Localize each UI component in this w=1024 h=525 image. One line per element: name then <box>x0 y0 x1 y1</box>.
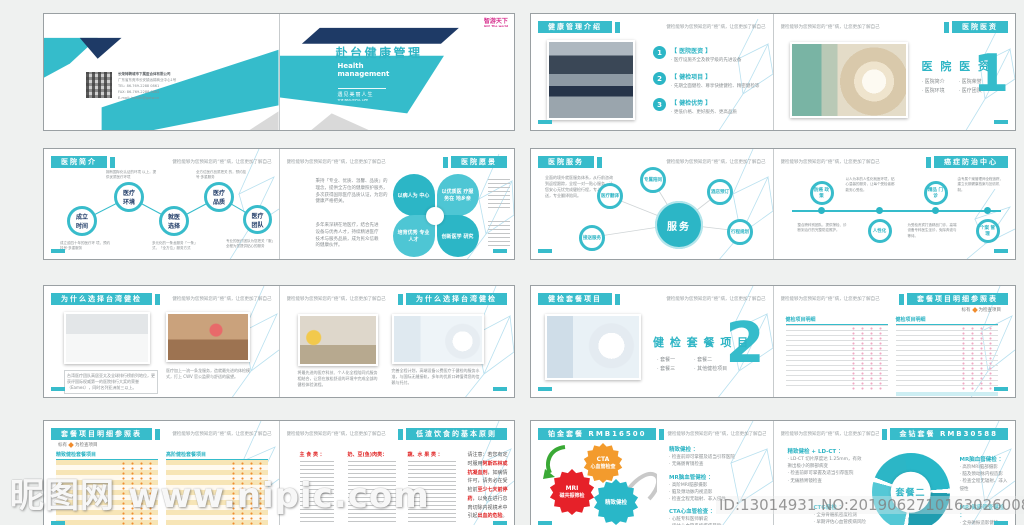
table-legend: 标有为检查项目 <box>962 307 1002 313</box>
running-header: 健检能够为您预知您的“癌”病，让您更加了解自己 <box>781 296 880 302</box>
running-header: 健检能够为您预知您的“癌”病，让您更加了解自己 <box>781 24 880 30</box>
page-header: 医院服务 健检能够为您预知您的“癌”病，让您更加了解自己 <box>531 156 773 168</box>
page-title: 医院医资 <box>952 21 1008 33</box>
stage-node: 个案 管理 <box>976 219 1000 243</box>
diamond-icon <box>972 307 978 313</box>
legend-text: 为检查项目 <box>75 442 98 448</box>
diet-col-header: 主 食 类 ： <box>300 451 325 458</box>
company-email: E-mail: health@gotw.cn <box>118 96 176 102</box>
company-info: 长荣特聘城市下属医合体有限公司 广东省东莞市长安镇远锦商业中心1号 TEL: 8… <box>118 72 176 102</box>
item-body: · 更低价格、更好服务、更高品质 <box>671 109 737 115</box>
timeline-caption: 拥有国际化认证的环境 以上，提供优质医疗环境 <box>106 170 158 181</box>
item-number: 2 <box>653 72 666 85</box>
timeline-caption: 专业的医疗团队为您把关「服」 全程为您提供贴心的服务 <box>226 239 276 250</box>
photo-caption: 医疗加上一流一条龙服务，造就最先进的体检模式，打上 CWV 官公监察与舒适的展望… <box>166 368 250 380</box>
axis-dot <box>932 207 939 214</box>
endoscopy-equipment-photo <box>547 40 635 120</box>
doctors-group-photo <box>64 312 150 364</box>
page-hospital-resources: 健检能够为您预知您的“癌”病，让您更加了解自己 医院医资 医 院 医 资 · 医… <box>773 14 1016 130</box>
bullet: · 套餐三 <box>657 365 675 374</box>
diet-col-header: 蔬、水 果 类 ： <box>408 451 443 458</box>
section-heading: MR脑血管健检 ： <box>669 473 764 481</box>
bullet: · 套餐一 <box>657 356 675 365</box>
page-header: 健康管理介绍 健检能够为您预知您的“癌”病，让您更加了解自己 <box>531 21 773 33</box>
diamond-icon <box>68 442 74 448</box>
page-why-taiwan-right: 健检能够为您预知您的“癌”病，让您更加了解自己 为什么选择台湾健检 将最先进的医… <box>279 286 515 397</box>
running-header: 健检能够为您预知您的“癌”病，让您更加了解自己 <box>172 296 271 302</box>
item-body: · 先期全面健检、尊享快捷健检、精密健检等 <box>671 83 759 89</box>
page-header: 健检能够为您预知您的“癌”病，让您更加了解自己 医院愿景 <box>280 156 515 168</box>
section-items: · LD-CT 切片厚度达 1.25mm，有效揪出极小的肺部病变 · 检查前即可… <box>788 456 866 485</box>
timeline-label: 医疗品质 <box>211 188 227 206</box>
page-header: 健检能够为您预知您的“癌”病，让您更加了解自己 金钻套餐 RMB30588 <box>774 428 1016 440</box>
legend-text: 为检查项目 <box>979 307 1002 313</box>
page-header: 健检能够为您预知您的“癌”病，让您更加了解自己 癌症防治中心 <box>774 156 1016 168</box>
page-marker <box>51 521 65 525</box>
page-cancer-center: 健检能够为您预知您的“癌”病，让您更加了解自己 癌症防治中心 防癌 政策 人性化… <box>773 149 1016 259</box>
package-detail-table: 健检项目明细 <box>786 316 888 390</box>
service-node: 酒店预订 <box>707 179 733 205</box>
gear-sublabel: 磁共振筛检 <box>558 492 586 499</box>
header-accent <box>398 429 403 440</box>
cover-tagline-cn: 遇见美丽人生 <box>338 91 386 98</box>
service-hub: 服务 <box>655 201 703 249</box>
header-accent <box>155 429 160 440</box>
service-label: 酒店预订 <box>711 189 729 195</box>
image-id-watermark: ID:13014931 NO:20190627101630260080 <box>716 496 1024 514</box>
cover-title: 赴台健康管理 <box>336 44 423 61</box>
section-big-title: 健 检 套 餐 项 目 <box>653 334 749 350</box>
page-marker <box>493 249 507 253</box>
petal-label: 以病人为 中心 <box>398 192 430 199</box>
page-header: 铂金套餐 RMB16500 健检能够为您预知您的“癌”病，让您更加了解自己 <box>531 428 773 440</box>
service-hub-label: 服务 <box>667 218 691 233</box>
bullet: · 医院简介 <box>922 78 945 87</box>
nipic-watermark: 昵图网 www.nipic.com <box>10 468 430 517</box>
cover-subtitle: Health management <box>338 62 390 78</box>
header-accent <box>944 22 949 33</box>
section-items: · 检查前即可掌握及适当引荐医院 · 无痛肠胃镜检查 <box>669 454 764 468</box>
stage-node: 人性化 <box>868 219 892 243</box>
page-title: 健检套餐项目 <box>538 293 612 305</box>
header-accent <box>443 157 448 168</box>
section-heading: 精致健检 + LD-CT ： <box>788 447 866 455</box>
page-marker <box>538 120 552 124</box>
page-title: 癌症防治中心 <box>934 156 1008 168</box>
section-heading: 精致健检 ： <box>669 445 764 453</box>
stage-caption: 由专属个案管理师全程追踪，建立长期健康档案与回访机制。 <box>958 177 1004 193</box>
mri-room-photo <box>790 42 908 118</box>
running-header: 健检能够为您预知您的“癌”病，让您更加了解自己 <box>781 431 879 437</box>
gear-sublabel: 心血管检查 <box>590 463 616 470</box>
cover-back-page: 长荣特聘城市下属医合体有限公司 广东省东莞市长安镇远锦商业中心1号 TEL: 8… <box>44 14 279 130</box>
header-accent <box>926 157 931 168</box>
service-label: 专属陪同 <box>644 177 662 183</box>
table-check-dots <box>957 325 996 390</box>
timeline-node: 医疗品质 <box>204 182 234 212</box>
resource-bullets-col2: · 医院荣誉 · 医疗团队 <box>959 78 982 95</box>
petal-label: 创新医学 研究 <box>442 233 474 240</box>
header-accent <box>899 294 904 305</box>
timeline-label: 医疗团队 <box>250 211 266 229</box>
table-title: 精致健检套餐项目 <box>56 451 158 460</box>
page-header: 医院简介 健检能够为您预知您的“癌”病，让您更加了解自己 <box>44 156 279 168</box>
mri-doctor-photo <box>392 314 484 364</box>
table-title: 健检项目明细 <box>896 316 998 325</box>
stage-node: 精品 门诊 <box>924 181 948 205</box>
timeline-node: 就医选择 <box>159 206 189 236</box>
vision-petal: 以优质医 疗服务在 地乡亲 <box>437 174 479 216</box>
cover-subtitle-line1: Health <box>338 62 390 70</box>
page-title: 医院简介 <box>51 156 107 168</box>
item-heading: 【 健检优势 】 <box>671 98 737 107</box>
axis-dot <box>984 207 991 214</box>
package-section: MR脑血管健检 ： · 高阶MRI脑部摄影 · 脑及颈动脉内视造影 · 检查全程… <box>960 455 1008 493</box>
qr-code <box>86 72 112 98</box>
table-check-dots <box>847 325 886 390</box>
page-title: 铂金套餐 RMB16500 <box>538 428 656 440</box>
page-marker <box>51 387 65 391</box>
page-hospital-profile: 医院简介 健检能够为您预知您的“癌”病，让您更加了解自己 成立时间 医疗环境 就… <box>44 149 279 259</box>
company-address: 广东省东莞市长安镇远锦商业中心1号 <box>118 78 176 84</box>
running-header: 健检能够为您预知您的“癌”病，让您更加了解自己 <box>666 24 765 30</box>
page-header: 健检能够为您预知您的“癌”病，让您更加了解自己 套餐项目明细参照表 <box>774 293 1016 305</box>
vision-paragraph: 多年来深耕在地医疗，结合先进设备与优秀人才，持续精进医疗技术与服务品质，成为民众… <box>316 223 382 250</box>
timeline-label: 成立时间 <box>74 212 90 230</box>
cover-tagline-en: THE BEAUTIFUL LIFE <box>338 98 386 102</box>
stock-preview-canvas: 长荣特聘城市下属医合体有限公司 广东省东莞市长安镇远锦商业中心1号 TEL: 8… <box>0 0 1024 525</box>
bullet: · 套餐二 <box>694 356 727 365</box>
cover-subtitle-line2: management <box>338 70 390 78</box>
spread-intro: 健康管理介绍 健检能够为您预知您的“癌”病，让您更加了解自己 1 【 医院医资 … <box>530 13 1016 131</box>
timeline-node: 成立时间 <box>67 206 97 236</box>
page-header: 健检能够为您预知您的“癌”病，让您更加了解自己 为什么选择台湾健检 <box>280 293 515 305</box>
green-arrow-icon <box>541 443 569 479</box>
service-node: 接送服务 <box>579 225 605 251</box>
intro-item: 1 【 医院医资 】 · 医疗设施齐全及教学级的先进设备 <box>653 46 741 63</box>
item-body: · 医疗设施齐全及教学级的先进设备 <box>671 57 741 63</box>
section-big-title: 医 院 医 资 <box>922 58 992 74</box>
diet-warning-note: 请注意：若您有定时服用阿斯匹林或抗凝血剂，如病情许可，请务必在受检前至少七天前停… <box>468 451 512 521</box>
header-accent <box>615 294 620 305</box>
stage-label: 人性化 <box>871 228 889 234</box>
timeline-node: 医疗环境 <box>114 182 144 212</box>
axis-dot <box>818 207 825 214</box>
page-package-table: 健检能够为您预知您的“癌”病，让您更加了解自己 套餐项目明细参照表 标有为检查项… <box>773 286 1016 397</box>
gear-label: MRI <box>566 485 579 492</box>
page-marker <box>994 120 1008 124</box>
page-title: 金钻套餐 RMB30588 <box>890 428 1008 440</box>
page-title: 为什么选择台湾健检 <box>406 293 507 305</box>
page-header: 套餐项目明细参照表 健检能够为您预知您的“癌”病，让您更加了解自己 <box>44 428 279 440</box>
page-hospital-services: 医院服务 健检能够为您预知您的“癌”病，让您更加了解自己 全面的境外就医服务体系… <box>531 149 773 259</box>
brand-logo-sub: GO! The world <box>484 25 508 28</box>
item-number: 3 <box>653 98 666 111</box>
spread-cover: 长荣特聘城市下属医合体有限公司 广东省东莞市长安镇远锦商业中心1号 TEL: 8… <box>43 13 515 131</box>
running-header: 健检能够为您预知您的“癌”病，让您更加了解自己 <box>666 296 765 302</box>
header-accent <box>882 429 887 440</box>
running-header: 健检能够为您预知您的“癌”病，让您更加了解自己 <box>287 159 386 165</box>
bullet: · 其他健检项目 <box>694 365 727 374</box>
service-node: 专属陪同 <box>640 167 666 193</box>
resource-bullets-col1: · 医院简介 · 医院环境 <box>922 78 945 95</box>
bullet: · 医疗团队 <box>959 87 982 96</box>
brand-logo: 智游天下 GO! The world <box>484 19 508 28</box>
spread-services: 医院服务 健检能够为您预知您的“癌”病，让您更加了解自己 全面的境外就医服务体系… <box>530 148 1016 260</box>
cover-tagline: 遇见美丽人生 THE BEAUTIFUL LIFE <box>338 88 386 102</box>
running-header: 健检能够为您预知您的“癌”病，让您更加了解自己 <box>287 431 386 437</box>
timeline-label: 医疗环境 <box>121 188 137 206</box>
bullet: · 医院荣誉 <box>959 78 982 87</box>
header-accent <box>597 157 602 168</box>
bullet: · 医院环境 <box>922 87 945 96</box>
page-package-chapter: 健检套餐项目 健检能够为您预知您的“癌”病，让您更加了解自己 健 检 套 餐 项… <box>531 286 773 397</box>
gear-label: 精致健检 <box>603 498 629 506</box>
header-accent <box>110 157 115 168</box>
page-title: 低渣饮食的基本原则 <box>406 428 507 440</box>
gear-cta: CTA 心血管检查 <box>583 443 623 483</box>
package-section: 精致健检 + LD-CT ： · LD-CT 切片厚度达 1.25mm，有效揪出… <box>788 447 866 485</box>
package-bullets-col1: · 套餐一 · 套餐三 <box>657 356 675 373</box>
stage-caption: 以人为本的人性化就医环境，贴心温馨的服务，让每个受检者都能安心受检。 <box>846 177 896 193</box>
photo-caption: 完善全程计划，高端设备公费医疗于健检的服务水准，与国际无缝接轨，多年的优质口碑值… <box>392 368 482 386</box>
service-label: 行程规划 <box>731 229 749 235</box>
page-marker <box>538 521 552 525</box>
stage-label: 个案 管理 <box>980 225 996 237</box>
table-legend: 标有为检查项目 <box>58 442 98 448</box>
photo-caption: 将最先进的医疗科技、个人化全程陪同式服务相结合，让您在放松舒适的环境中完成全部的… <box>298 370 378 388</box>
running-header: 健检能够为您预知您的“癌”病，让您更加了解自己 <box>666 159 765 165</box>
page-title: 套餐项目明细参照表 <box>907 293 1008 305</box>
page-health-intro: 健康管理介绍 健检能够为您预知您的“癌”病，让您更加了解自己 1 【 医院医资 … <box>531 14 773 130</box>
section-items: · 高阶MRI脑部摄影 · 脑及颈动脉内视造影 · 检查全程无辐射、非入侵性 <box>960 464 1008 493</box>
photo-caption: 台湾医疗团队高居亚太及全球排行榜前列地位，更获评国际权威第一的医院排行大奖的荣誉… <box>64 370 158 394</box>
petal-label: 培育优秀 专业人才 <box>397 229 431 243</box>
page-hospital-vision: 健检能够为您预知您的“癌”病，让您更加了解自己 医院愿景 秉持「专业、优质、温馨… <box>279 149 515 259</box>
timeline-caption: 全方位医疗品质把关 的，预约挂号·多重服务 <box>196 170 248 181</box>
service-node: 行程规划 <box>727 219 753 245</box>
page-title: 套餐项目明细参照表 <box>51 428 152 440</box>
page-marker <box>51 249 65 253</box>
page-header: 健检能够为您预知您的“癌”病，让您更加了解自己 低渣饮食的基本原则 <box>280 428 515 440</box>
section-items: · 心脏专科医师解说 · 评估心血管系统疾病风险 · 早期发现早期治疗 <box>669 516 764 525</box>
page-marker <box>538 249 552 253</box>
spread-hospital-profile: 医院简介 健检能够为您预知您的“癌”病，让您更加了解自己 成立时间 医疗环境 就… <box>43 148 515 260</box>
stage-caption: 整合跨科别团队，提供筛检、诊断到治疗的完整防癌照护。 <box>798 223 848 234</box>
consultation-photo <box>166 312 250 362</box>
spread-packages: 健检套餐项目 健检能够为您预知您的“癌”病，让您更加了解自己 健 检 套 餐 项… <box>530 285 1016 398</box>
page-marker <box>994 249 1008 253</box>
package-bullets-col2: · 套餐二 · 其他健检项目 <box>694 356 727 373</box>
vision-paragraph: 秉持「专业、优质、温馨、品质」的理念，提供全方位的健康照护服务，多次获得国际医疗… <box>316 179 388 206</box>
page-header: 健检能够为您预知您的“癌”病，让您更加了解自己 医院医资 <box>774 21 1016 33</box>
running-header: 健检能够为您预知您的“癌”病，让您更加了解自己 <box>781 159 880 165</box>
timeline-label: 就医选择 <box>166 212 182 230</box>
table-title: 健检项目明细 <box>786 316 888 325</box>
header-accent <box>659 429 664 440</box>
note-text-red: 出血的危险 <box>478 513 503 519</box>
item-heading: 【 医院医资 】 <box>671 46 741 55</box>
vision-petal: 创新医学 研究 <box>437 215 479 257</box>
page-header: 健检套餐项目 健检能够为您预知您的“癌”病，让您更加了解自己 <box>531 293 773 305</box>
page-title: 健康管理介绍 <box>538 21 612 33</box>
running-header: 健检能够为您预知您的“癌”病，让您更加了解自己 <box>287 296 386 302</box>
mri-scan-photo <box>545 314 641 380</box>
stage-node: 防癌 政策 <box>810 181 834 205</box>
spread-why-taiwan: 为什么选择台湾健检 健检能够为您预知您的“癌”病，让您更加了解自己 台湾医疗团队… <box>43 285 515 398</box>
diet-col-header: 奶、豆(鱼)肉类： <box>348 451 388 458</box>
vision-hub <box>426 207 444 225</box>
legend-text: 标有 <box>58 442 67 448</box>
header-accent <box>398 294 403 305</box>
timeline-node: 医疗团队 <box>243 205 272 234</box>
item-heading: 【 健检项目 】 <box>671 72 759 81</box>
page-marker <box>493 521 507 525</box>
item-number: 1 <box>653 46 666 59</box>
page-marker <box>994 387 1008 391</box>
section-heading: MR脑血管健检 ： <box>960 455 1008 463</box>
page-marker <box>994 521 1008 525</box>
family-consult-photo <box>298 314 378 366</box>
page-title: 医院愿景 <box>451 156 507 168</box>
sidebar-text-block <box>488 179 510 209</box>
running-header: 健检能够为您预知您的“癌”病，让您更加了解自己 <box>667 431 765 437</box>
stage-caption: 为受检贵宾打造精品门诊，高端设备专科医生坐诊，免除奔波与等待。 <box>908 223 958 239</box>
axis-dot <box>876 207 883 214</box>
table-summary-bar <box>896 392 998 396</box>
stage-label: 防癌 政策 <box>814 187 830 199</box>
page-marker <box>493 387 507 391</box>
running-header: 健检能够为您预知您的“癌”病，让您更加了解自己 <box>172 431 271 437</box>
package-detail-table: 健检项目明细 <box>896 316 998 390</box>
service-label: 接送服务 <box>583 235 601 241</box>
sidebar-text-block <box>488 221 510 247</box>
page-title: 为什么选择台湾健检 <box>51 293 152 305</box>
page-title: 医院服务 <box>538 156 594 168</box>
note-text: 。 <box>503 513 508 519</box>
service-node: 医疗翻译 <box>597 183 623 209</box>
package-donut-chart: 套餐二 <box>872 453 950 525</box>
header-accent <box>155 294 160 305</box>
page-why-taiwan-left: 为什么选择台湾健检 健检能够为您预知您的“癌”病，让您更加了解自己 台湾医疗团队… <box>44 286 279 397</box>
header-accent <box>615 22 620 33</box>
running-header: 健检能够为您预知您的“癌”病，让您更加了解自己 <box>172 159 271 165</box>
gear-label: CTA <box>597 456 610 463</box>
petal-label: 以优质医 疗服务在 地乡亲 <box>441 188 475 202</box>
legend-text: 标有 <box>962 307 971 313</box>
cover-front-page: 智游天下 GO! The world 赴台健康管理 Health managem… <box>279 14 515 130</box>
service-label: 医疗翻译 <box>601 193 619 199</box>
page-marker <box>538 387 552 391</box>
timeline-caption: 多元化的一条龙服务「一条」 式，「全方位」服务方式 <box>152 241 204 252</box>
timeline-caption: 成立逾四十年的医疗环 境，预约挂号·多重服务 <box>60 241 112 252</box>
stage-label: 精品 门诊 <box>928 187 944 199</box>
intro-item: 3 【 健检优势 】 · 更低价格、更好服务、更高品质 <box>653 98 737 115</box>
page-header: 为什么选择台湾健检 健检能够为您预知您的“癌”病，让您更加了解自己 <box>44 293 279 305</box>
intro-item: 2 【 健检项目 】 · 先期全面健检、尊享快捷健检、精密健检等 <box>653 72 759 89</box>
package-section: 精致健检 ： · 检查前即可掌握及适当引荐医院 · 无痛肠胃镜检查 <box>669 445 764 468</box>
table-title: 高阶健检套餐项目 <box>166 451 268 460</box>
